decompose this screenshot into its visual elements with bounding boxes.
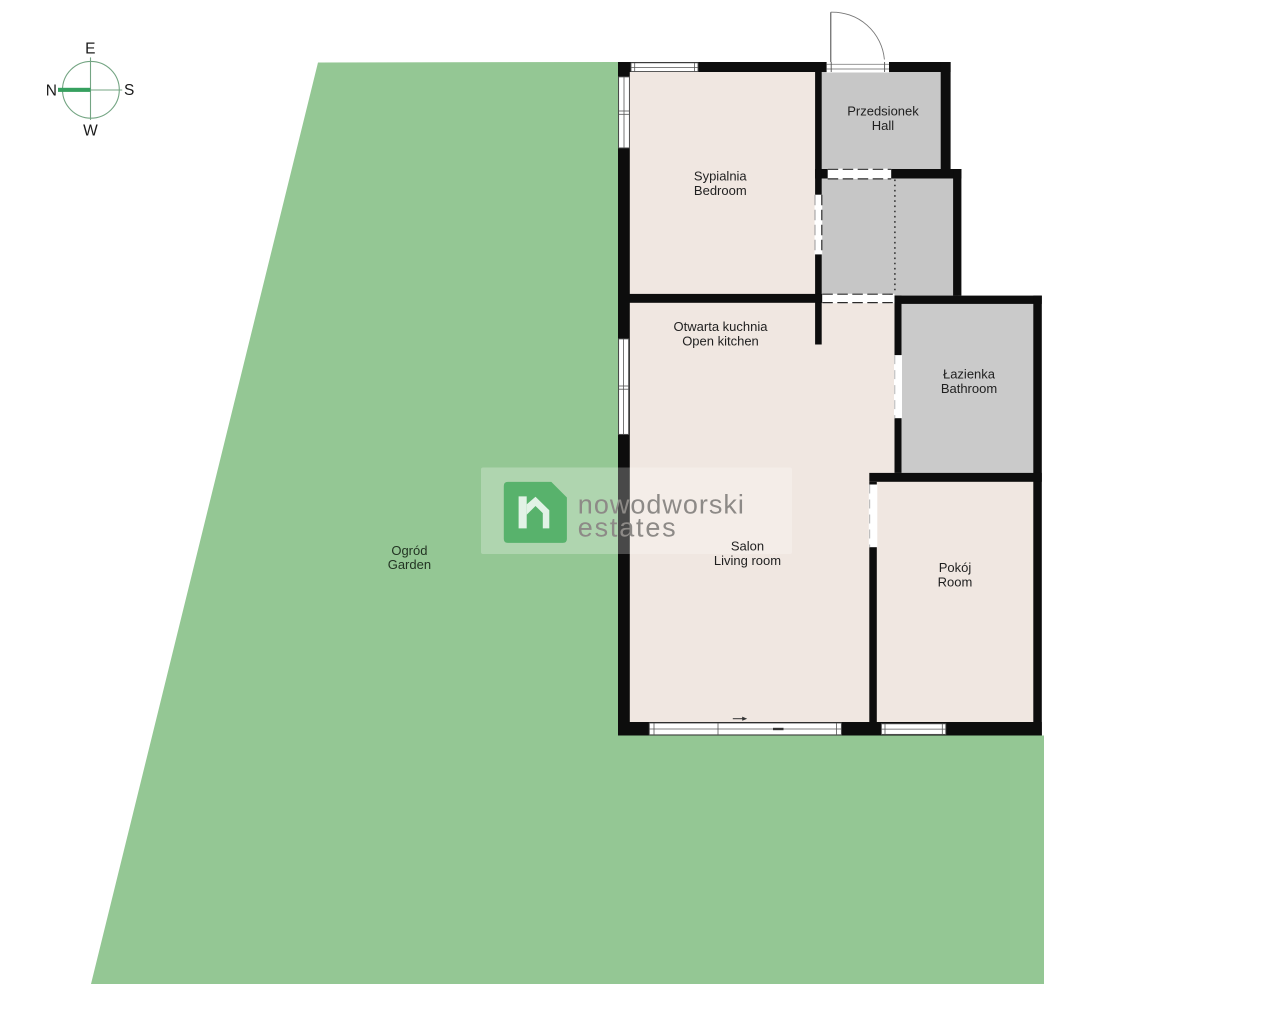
svg-text:Room: Room: [938, 574, 973, 589]
svg-text:Living room: Living room: [714, 553, 781, 568]
svg-text:Ogród: Ogród: [391, 543, 427, 558]
svg-text:Bathroom: Bathroom: [941, 381, 997, 396]
svg-text:Garden: Garden: [388, 557, 431, 572]
svg-text:N: N: [46, 82, 57, 99]
svg-text:Przedsionek: Przedsionek: [847, 104, 919, 119]
svg-text:Open kitchen: Open kitchen: [682, 333, 759, 348]
svg-text:Pokój: Pokój: [939, 560, 972, 575]
svg-text:Łazienka: Łazienka: [943, 367, 996, 382]
svg-text:Bedroom: Bedroom: [694, 183, 747, 198]
svg-text:Sypialnia: Sypialnia: [694, 169, 748, 184]
svg-text:Otwarta kuchnia: Otwarta kuchnia: [674, 319, 769, 334]
svg-text:Hall: Hall: [872, 118, 895, 133]
svg-text:E: E: [85, 40, 95, 57]
svg-text:W: W: [83, 123, 98, 140]
svg-text:estates: estates: [578, 512, 678, 542]
svg-text:Salon: Salon: [731, 539, 764, 554]
svg-text:S: S: [124, 82, 134, 99]
